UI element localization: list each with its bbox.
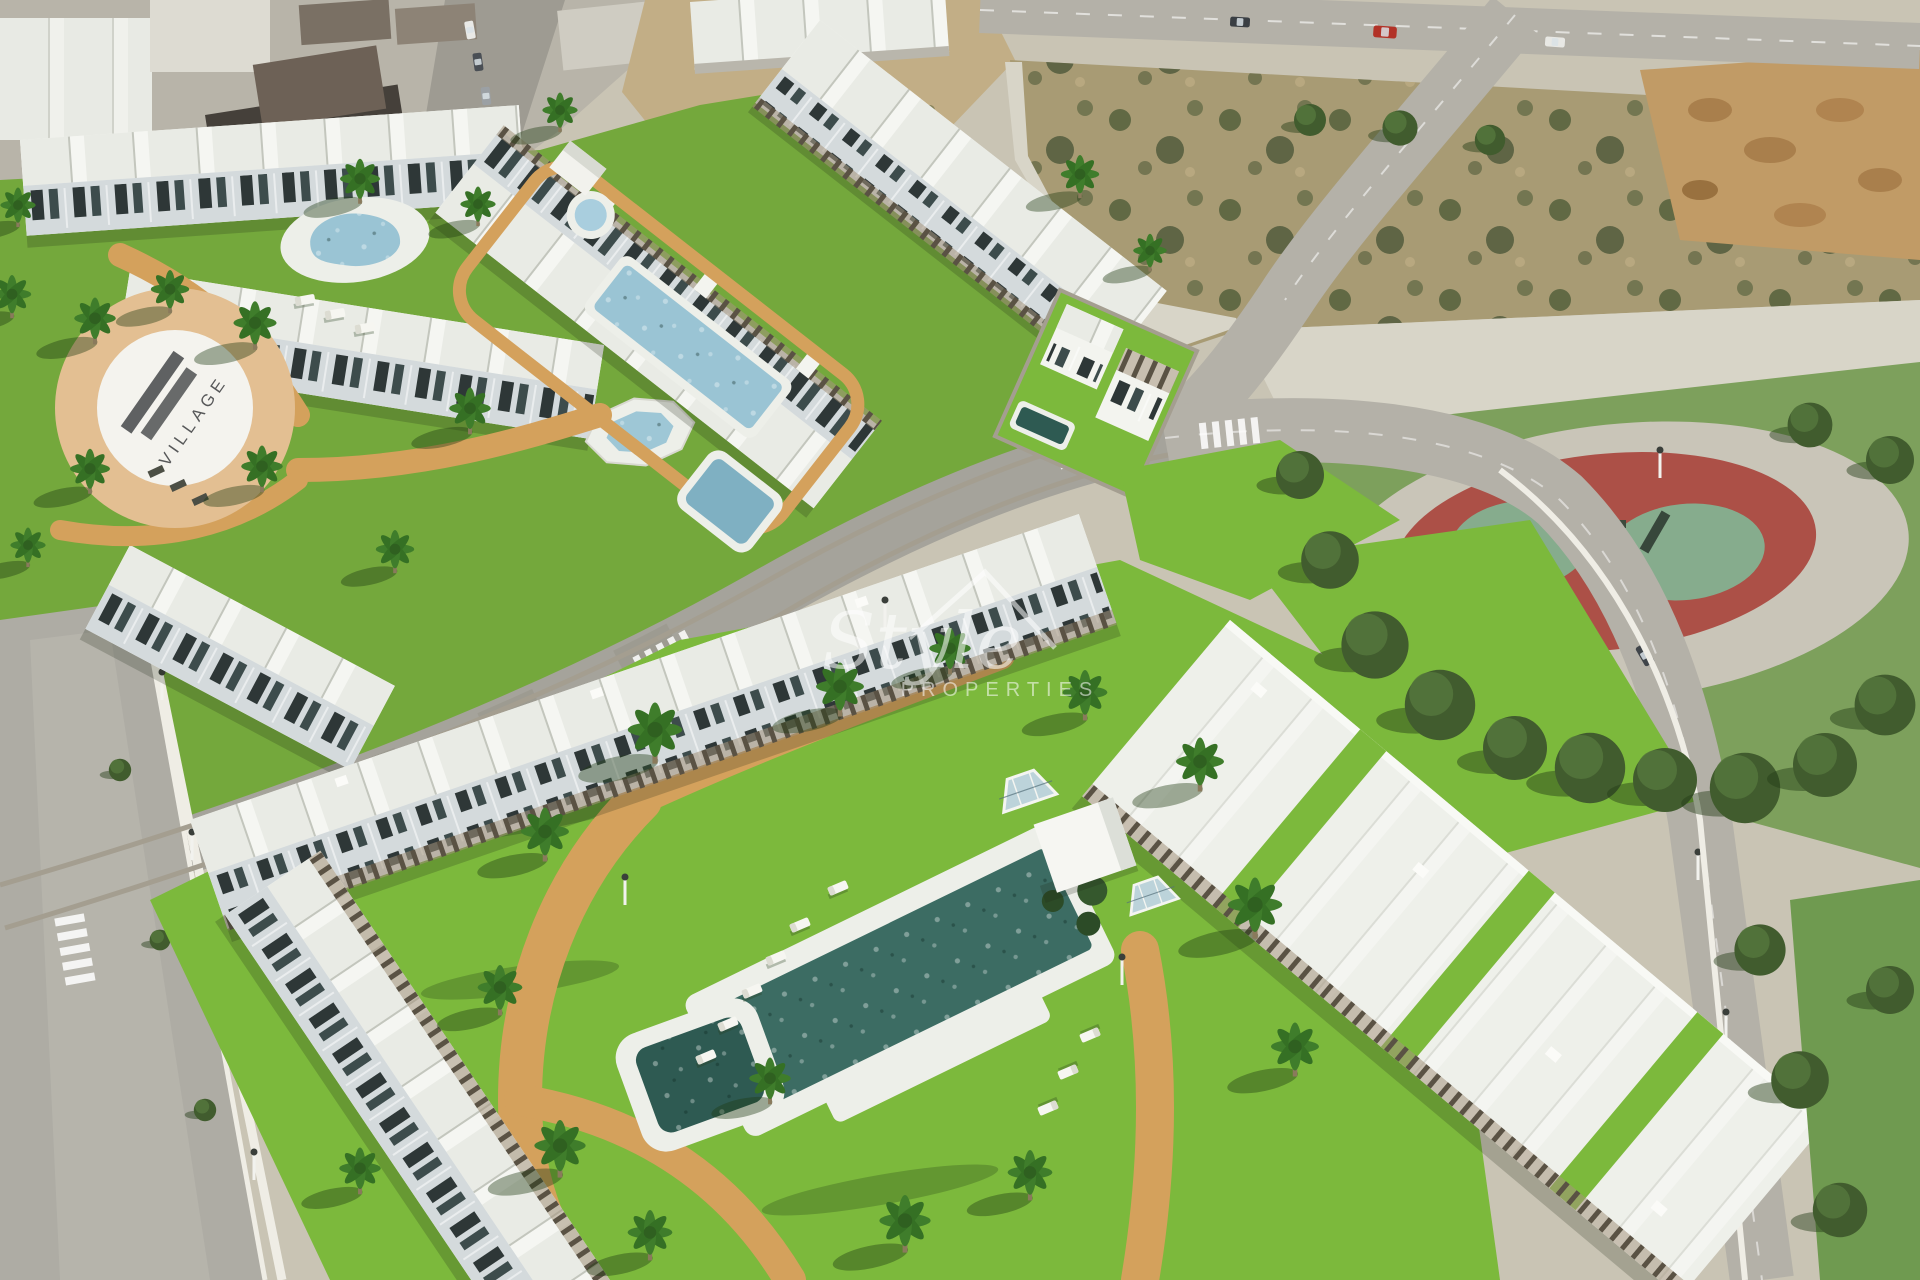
mound [1774,203,1826,227]
mound [1688,98,1732,122]
mound [1744,137,1796,163]
dirt-mounds [1640,50,1920,260]
car [1230,17,1250,28]
watermark-caps: PROPERTIES [901,679,1100,701]
town-building [0,18,152,140]
parked-car [481,87,492,106]
mound [1682,180,1718,200]
watermark-script: Style [822,597,1022,687]
red-car [1373,25,1397,38]
car [1545,36,1565,47]
garden-path [1140,950,1155,1280]
mound [1858,168,1902,192]
aerial-development-render: VILLAGE [0,0,1920,1280]
town-building [150,0,270,72]
mound [1816,98,1864,122]
scene-canvas: VILLAGE [0,0,1920,1280]
town-roof [299,0,392,45]
